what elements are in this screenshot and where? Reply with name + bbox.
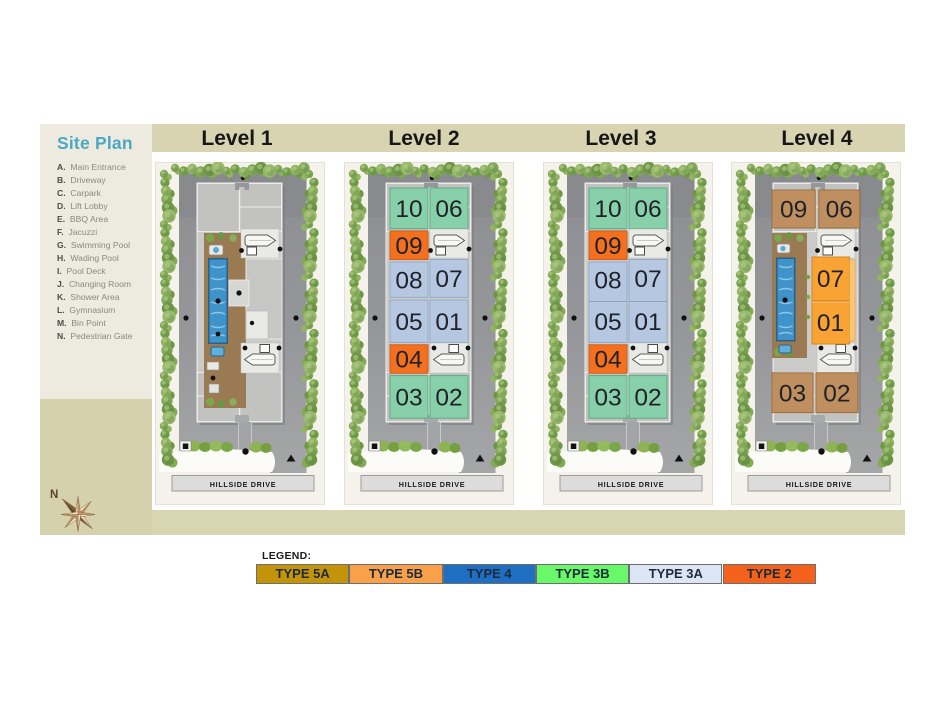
svg-text:01: 01 xyxy=(816,310,843,337)
svg-text:03: 03 xyxy=(594,385,621,412)
svg-text:N: N xyxy=(50,489,58,501)
svg-text:03: 03 xyxy=(395,385,422,412)
svg-text:10: 10 xyxy=(594,196,621,223)
svg-text:03: 03 xyxy=(778,380,805,407)
svg-text:07: 07 xyxy=(435,266,462,293)
svg-text:02: 02 xyxy=(823,380,850,407)
svg-text:09: 09 xyxy=(395,233,422,260)
svg-text:06: 06 xyxy=(634,196,661,223)
svg-text:02: 02 xyxy=(435,385,462,412)
svg-text:04: 04 xyxy=(594,347,621,374)
svg-text:01: 01 xyxy=(634,309,661,336)
svg-text:09: 09 xyxy=(780,197,807,224)
svg-text:08: 08 xyxy=(395,267,422,294)
svg-text:02: 02 xyxy=(634,385,661,412)
svg-text:06: 06 xyxy=(435,196,462,223)
svg-text:07: 07 xyxy=(816,266,843,293)
svg-text:06: 06 xyxy=(825,197,852,224)
svg-text:08: 08 xyxy=(594,268,621,295)
svg-text:05: 05 xyxy=(594,309,621,336)
svg-text:10: 10 xyxy=(395,196,422,223)
svg-text:01: 01 xyxy=(435,309,462,336)
svg-text:04: 04 xyxy=(395,347,422,374)
svg-text:07: 07 xyxy=(634,266,661,293)
svg-text:09: 09 xyxy=(594,233,621,260)
svg-text:05: 05 xyxy=(395,309,422,336)
